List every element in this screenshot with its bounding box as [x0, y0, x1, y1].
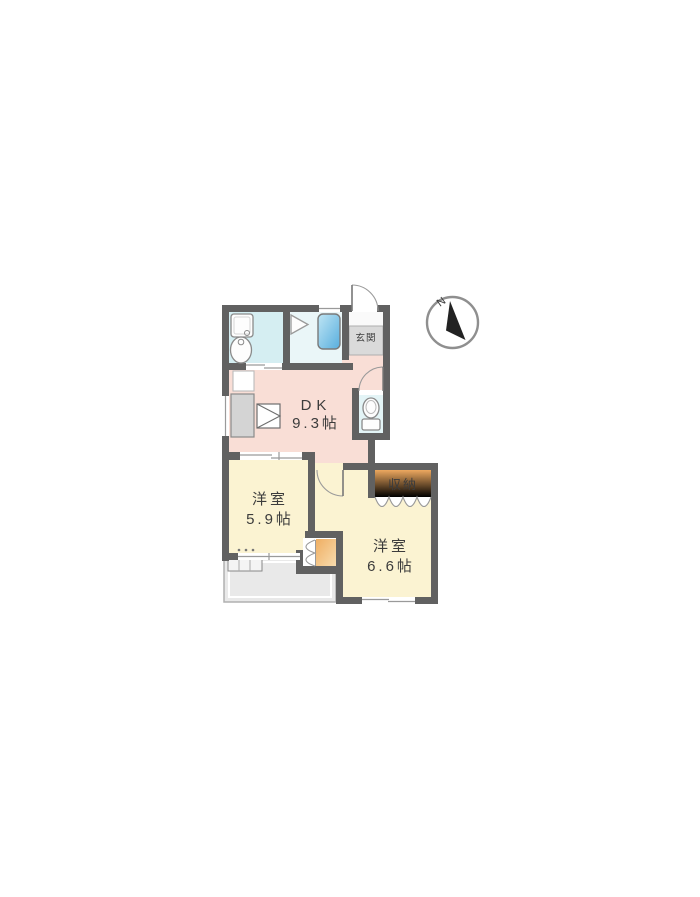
bathtub-icon [318, 314, 340, 349]
kitchen-counter-icon [231, 394, 254, 437]
outdoor-unit [228, 559, 262, 571]
bedroom-closet-interior [316, 539, 336, 566]
wall-outer-right-lower [431, 463, 438, 604]
refrigerator-space-icon [257, 404, 280, 428]
wall-washroom-divider [283, 305, 290, 370]
bedroom-west-label: 洋室 [252, 491, 288, 508]
floor-plan-page: 収納 DK 9.3帖 洋室 5.9帖 洋室 [0, 0, 700, 897]
wall-bath-entrance [342, 305, 349, 360]
bedroom-east-size-label: 6.6帖 [367, 558, 415, 575]
washbasin-icon [231, 337, 252, 363]
bath-fixtures [318, 314, 340, 349]
kitchen-cabinet-icon [233, 371, 254, 391]
dk-bedroom-sliding-door [240, 452, 302, 460]
sill-dot [252, 549, 255, 552]
bedroom-closet [303, 538, 336, 566]
wall-closet-top [305, 531, 343, 538]
dk-size-label: 9.3帖 [292, 415, 340, 432]
toilet-tank-icon [362, 419, 380, 430]
wall-outer-right-upper [383, 305, 390, 440]
entrance-entry-strip [349, 312, 383, 326]
front-door-arc [352, 285, 378, 311]
wall-storage-left [368, 433, 375, 498]
wall-bedrooms-divider [308, 452, 315, 542]
wall-closet-bottom [296, 566, 343, 574]
bedroom-east-floor-upper [315, 463, 343, 538]
wall-storage-top [343, 463, 438, 470]
bedroom-east-window [362, 597, 415, 604]
floor-plan-drawing: 収納 DK 9.3帖 洋室 5.9帖 洋室 [0, 0, 700, 897]
sill-dot [245, 549, 248, 552]
compass: N [427, 295, 478, 348]
entrance-label: 玄関 [355, 332, 376, 344]
washroom-sliding-door [246, 363, 282, 370]
dk-label: DK [301, 397, 332, 414]
wall-toilet-left [352, 388, 359, 435]
toilet-fixtures [362, 398, 380, 430]
storage-label: 収納 [388, 477, 418, 492]
bedroom-east-label: 洋室 [373, 538, 409, 555]
sill-dot [238, 549, 241, 552]
bedroom-west-size-label: 5.9帖 [246, 511, 294, 528]
